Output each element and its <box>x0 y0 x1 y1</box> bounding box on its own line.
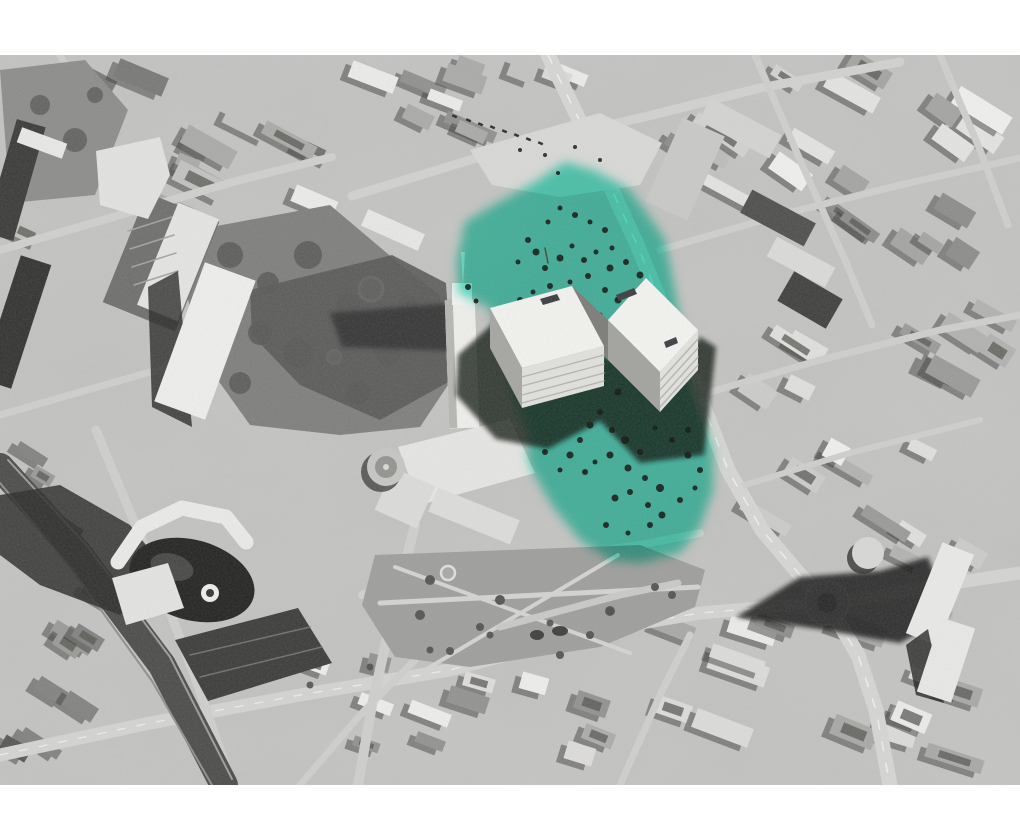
site-tree-dot-19 <box>602 287 608 293</box>
site-tree-dot-63 <box>603 522 609 528</box>
parks-27 <box>495 595 505 605</box>
site-tree-dot-51 <box>697 467 703 473</box>
aerial-photo <box>0 55 1020 785</box>
site-tree-dot-12 <box>594 250 599 255</box>
site-tree-dot-31 <box>474 299 479 304</box>
site-tree-dot-28 <box>637 272 644 279</box>
parks-32 <box>425 575 435 585</box>
congress-hall-oculus <box>383 464 389 470</box>
parks-37 <box>367 664 374 671</box>
square-north-construction-1 <box>518 148 522 152</box>
parks-41 <box>607 608 614 615</box>
site-tree-dot-46 <box>612 495 619 502</box>
site-tree-dot-9 <box>557 255 564 262</box>
parks-15 <box>63 128 87 152</box>
site-tree-dot-4 <box>546 220 551 225</box>
square-north-construction-2 <box>543 153 547 157</box>
top-margin <box>0 0 1020 55</box>
site-tree-dot-43 <box>642 475 648 481</box>
parks-1 <box>217 242 243 268</box>
site-tree-dot-0 <box>558 206 563 211</box>
parks-25 <box>415 610 425 620</box>
site-tree-dot-6 <box>533 249 540 256</box>
site-tree-dot-27 <box>623 259 629 265</box>
site-tree-dot-13 <box>607 265 614 272</box>
parks-30 <box>651 583 659 591</box>
site-tree-dot-59 <box>542 449 548 455</box>
site-tree-dot-11 <box>581 257 587 263</box>
flowerbed-2 <box>552 626 568 636</box>
site-tree-dot-26 <box>610 246 615 251</box>
parks-39 <box>487 632 494 639</box>
parks-36 <box>307 682 314 689</box>
parks-7 <box>229 372 251 394</box>
parks-33 <box>586 631 594 639</box>
site-tree-dot-7 <box>516 260 521 265</box>
parks-31 <box>476 623 484 631</box>
site-tree-dot-40 <box>607 452 614 459</box>
site-tree-dot-61 <box>647 522 653 528</box>
parks-14 <box>30 95 50 115</box>
parks-38 <box>427 647 434 654</box>
site-tree-dot-17 <box>531 290 536 295</box>
site-tree-dot-45 <box>627 489 633 495</box>
site-tree-dot-58 <box>558 468 563 473</box>
square-north-construction-3 <box>573 145 577 149</box>
site-tree-dot-3 <box>602 227 608 233</box>
bank-rotunda <box>852 537 884 569</box>
site-tree-dot-5 <box>525 237 531 243</box>
page <box>0 0 1020 840</box>
atrium-ring-center <box>206 589 214 597</box>
site-tree-dot-1 <box>572 212 578 218</box>
parks-17 <box>87 87 103 103</box>
mini-roundabout <box>441 566 455 580</box>
parks-34 <box>668 591 676 599</box>
bottom-margin <box>0 785 1020 840</box>
site-tree-dot-10 <box>570 244 575 249</box>
parks-40 <box>547 620 554 627</box>
site-tree-dot-57 <box>582 469 588 475</box>
site-tree-dot-44 <box>656 484 664 492</box>
site-tree-dot-55 <box>577 437 583 443</box>
site-tree-dot-41 <box>593 460 598 465</box>
flowerbed-1 <box>530 630 544 640</box>
site-tree-dot-15 <box>568 280 573 285</box>
parks-28 <box>556 651 564 659</box>
site-tree-dot-49 <box>677 497 683 503</box>
photo-layers <box>0 55 1020 785</box>
site-tree-dot-50 <box>693 486 698 491</box>
parks-26 <box>446 647 454 655</box>
square-north-construction-4 <box>598 158 602 162</box>
site-tree-dot-16 <box>547 283 553 289</box>
site-tree-dot-48 <box>659 512 666 519</box>
parks-3 <box>294 241 322 269</box>
site-tree-dot-2 <box>588 220 593 225</box>
site-tree-dot-62 <box>626 531 631 536</box>
site-tree-dot-14 <box>585 273 591 279</box>
site-tree-dot-8 <box>542 265 548 271</box>
site-tree-dot-42 <box>625 465 632 472</box>
site-tree-dot-56 <box>567 452 574 459</box>
site-tree-dot-30 <box>465 284 471 290</box>
site-tree-dot-47 <box>645 502 651 508</box>
